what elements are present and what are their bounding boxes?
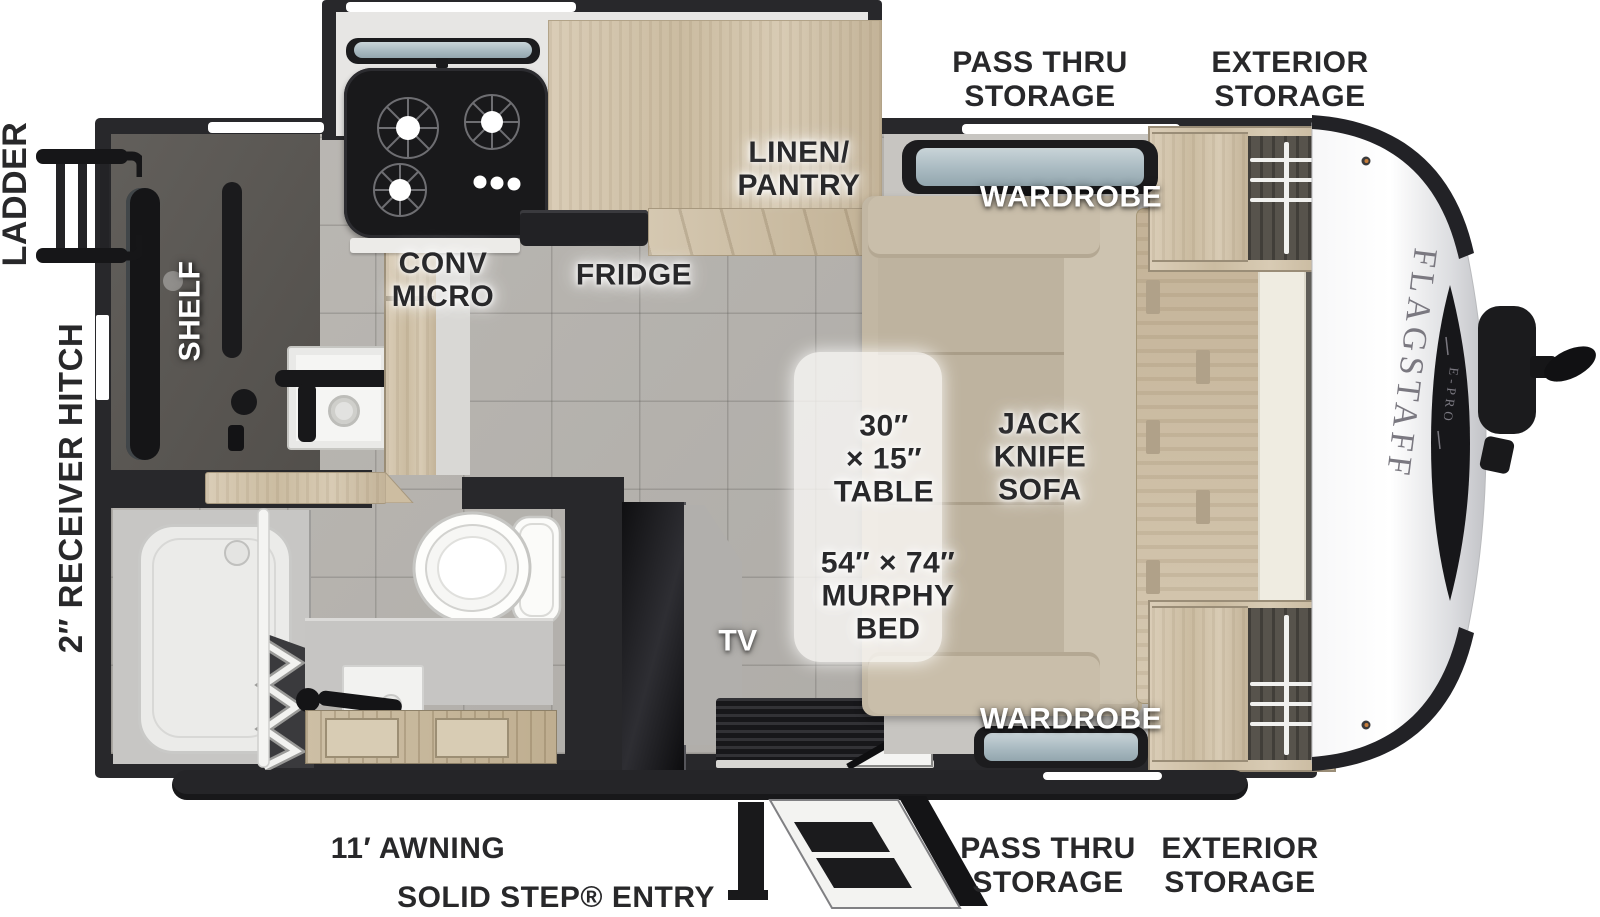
pass-thru-bottom-line2: STORAGE bbox=[960, 866, 1136, 900]
cooktop-burners bbox=[344, 68, 548, 238]
sofa-line3: SOFA bbox=[994, 474, 1087, 507]
label-linen-pantry: LINEN/ PANTRY bbox=[738, 136, 861, 202]
murphy-line3: BED bbox=[821, 613, 955, 646]
label-ladder: LADDER bbox=[0, 122, 32, 267]
pantry-line: PANTRY bbox=[738, 169, 861, 202]
hitch-coupler bbox=[1478, 306, 1536, 434]
label-pass-thru-top: PASS THRU STORAGE bbox=[952, 46, 1128, 114]
awning-window-strip bbox=[1043, 772, 1162, 780]
table-line1: 30″ bbox=[834, 410, 934, 443]
linen-line: LINEN/ bbox=[738, 136, 861, 169]
label-fridge: FRIDGE bbox=[576, 259, 692, 292]
slat-tray-left bbox=[325, 718, 399, 758]
pantry-lower-drawers bbox=[648, 208, 882, 256]
front-cabinet-top-drawers bbox=[1152, 132, 1248, 262]
conv-line: CONV bbox=[392, 247, 495, 280]
tv-wall bbox=[565, 477, 622, 772]
rear-wall-window-strip bbox=[96, 315, 109, 400]
pass-thru-top-line2: STORAGE bbox=[952, 80, 1128, 114]
label-awning: 11′ AWNING bbox=[331, 832, 505, 866]
shower-door-pole bbox=[258, 509, 269, 767]
murphy-panel-slot-4 bbox=[1196, 350, 1210, 384]
tub-drain bbox=[224, 540, 250, 566]
wardrobe-window-bottom-glass bbox=[984, 733, 1138, 761]
label-conv-micro: CONV MICRO bbox=[392, 247, 495, 313]
murphy-panel-slot-2 bbox=[1146, 420, 1160, 454]
ladder-rail-top bbox=[36, 149, 128, 164]
step-bracket bbox=[738, 802, 764, 900]
slat-tray-right bbox=[435, 718, 509, 758]
sofa-line1: JACK bbox=[994, 408, 1087, 441]
ladder-icon bbox=[30, 135, 142, 280]
label-wardrobe-bottom: WARDROBE bbox=[980, 703, 1162, 736]
slideout-roof-window-strip bbox=[346, 2, 576, 12]
label-jack-knife-sofa: JACK KNIFE SOFA bbox=[994, 408, 1087, 507]
label-exterior-storage-top: EXTERIOR STORAGE bbox=[1211, 46, 1368, 114]
counter-fixture bbox=[228, 425, 244, 451]
pass-thru-top-line1: PASS THRU bbox=[952, 46, 1128, 80]
peninsula-counter-end bbox=[385, 472, 415, 503]
murphy-panel-slot-3 bbox=[1146, 560, 1160, 594]
label-wardrobe-top: WARDROBE bbox=[980, 181, 1162, 214]
floorplan-canvas: FLAGSTAFF E-PRO LADDER 2″ RECEIVER HITCH… bbox=[0, 0, 1600, 917]
toilet bbox=[405, 505, 570, 635]
murphy-panel-slot-1 bbox=[1146, 280, 1160, 314]
table-line3: TABLE bbox=[834, 476, 934, 509]
kitchen-sink-drain bbox=[328, 395, 360, 427]
label-murphy-bed: 54″ × 74″ MURPHY BED bbox=[821, 547, 955, 646]
hitch-assembly bbox=[1470, 290, 1600, 485]
entry-text: SOLID STEP® ENTRY bbox=[397, 881, 715, 914]
label-receiver-hitch: 2″ RECEIVER HITCH bbox=[54, 323, 88, 654]
hitch-lower-piece bbox=[1479, 435, 1515, 474]
wardrobe-bottom-text: WARDROBE bbox=[980, 703, 1162, 736]
exterior-bottom-line2: STORAGE bbox=[1161, 866, 1318, 900]
label-solid-step-entry: SOLID STEP® ENTRY bbox=[397, 881, 715, 915]
murphy-panel-slot-5 bbox=[1196, 490, 1210, 524]
awning-text: 11′ AWNING bbox=[331, 832, 505, 865]
stove-window-latch bbox=[436, 58, 448, 68]
label-tv: TV bbox=[718, 625, 757, 658]
pass-thru-bottom-line1: PASS THRU bbox=[960, 832, 1136, 866]
murphy-line2: MURPHY bbox=[821, 580, 955, 613]
label-ladder-text: LADDER bbox=[0, 122, 34, 267]
fridge-text: FRIDGE bbox=[576, 259, 692, 292]
jack-handle-knob bbox=[1539, 339, 1600, 389]
kitchen-faucet-knob bbox=[231, 389, 257, 415]
peninsula-counter-cap bbox=[205, 472, 387, 504]
label-table: 30″ × 15″ TABLE bbox=[834, 410, 934, 509]
kitchen-faucet-stem bbox=[298, 384, 316, 442]
tv-text: TV bbox=[718, 625, 757, 658]
shelf-text: SHELF bbox=[174, 261, 207, 362]
murphy-line1: 54″ × 74″ bbox=[821, 547, 955, 580]
exterior-top-line2: STORAGE bbox=[1211, 80, 1368, 114]
tv-panel bbox=[622, 502, 686, 772]
wardrobe-top-text: WARDROBE bbox=[980, 181, 1162, 214]
ladder-rail-bottom bbox=[36, 248, 128, 263]
label-pass-thru-bottom: PASS THRU STORAGE bbox=[960, 832, 1136, 900]
fridge bbox=[520, 210, 648, 246]
label-exterior-storage-bottom: EXTERIOR STORAGE bbox=[1161, 832, 1318, 900]
table-line2: × 15″ bbox=[834, 443, 934, 476]
solid-step-entry-steps bbox=[720, 792, 1000, 917]
towel-bar bbox=[222, 182, 242, 358]
top-wall-window-strip-left bbox=[208, 122, 324, 133]
sofa-line2: KNIFE bbox=[994, 441, 1087, 474]
exterior-top-line1: EXTERIOR bbox=[1211, 46, 1368, 80]
exterior-bottom-line1: EXTERIOR bbox=[1161, 832, 1318, 866]
stove-window-glass bbox=[354, 42, 532, 58]
vanity-faucet-knob bbox=[296, 688, 320, 712]
front-cabinet-bottom-drawers bbox=[1152, 606, 1248, 762]
label-receiver-hitch-text: 2″ RECEIVER HITCH bbox=[52, 323, 89, 654]
micro-line: MICRO bbox=[392, 280, 495, 313]
label-shelf: SHELF bbox=[174, 261, 207, 362]
